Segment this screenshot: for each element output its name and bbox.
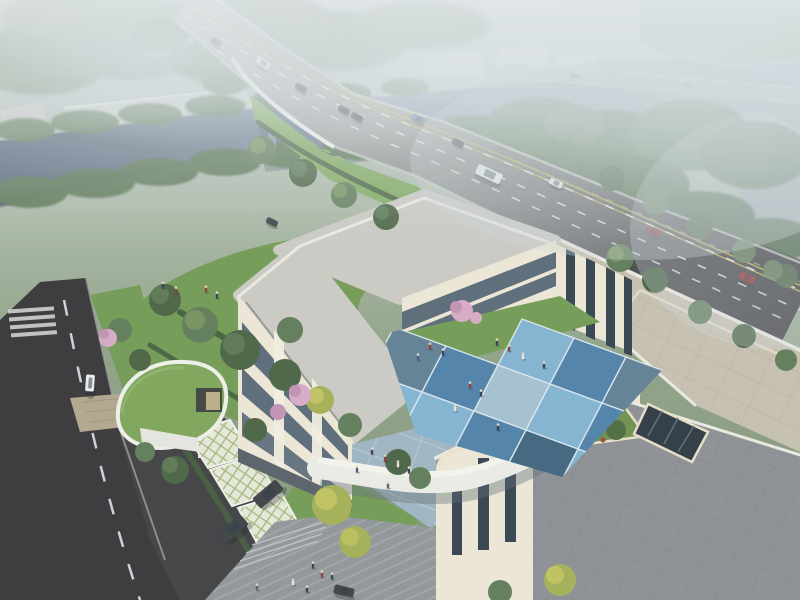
haze-overlay bbox=[0, 0, 800, 600]
render-canvas bbox=[0, 0, 800, 600]
aerial-architectural-rendering bbox=[0, 0, 800, 600]
